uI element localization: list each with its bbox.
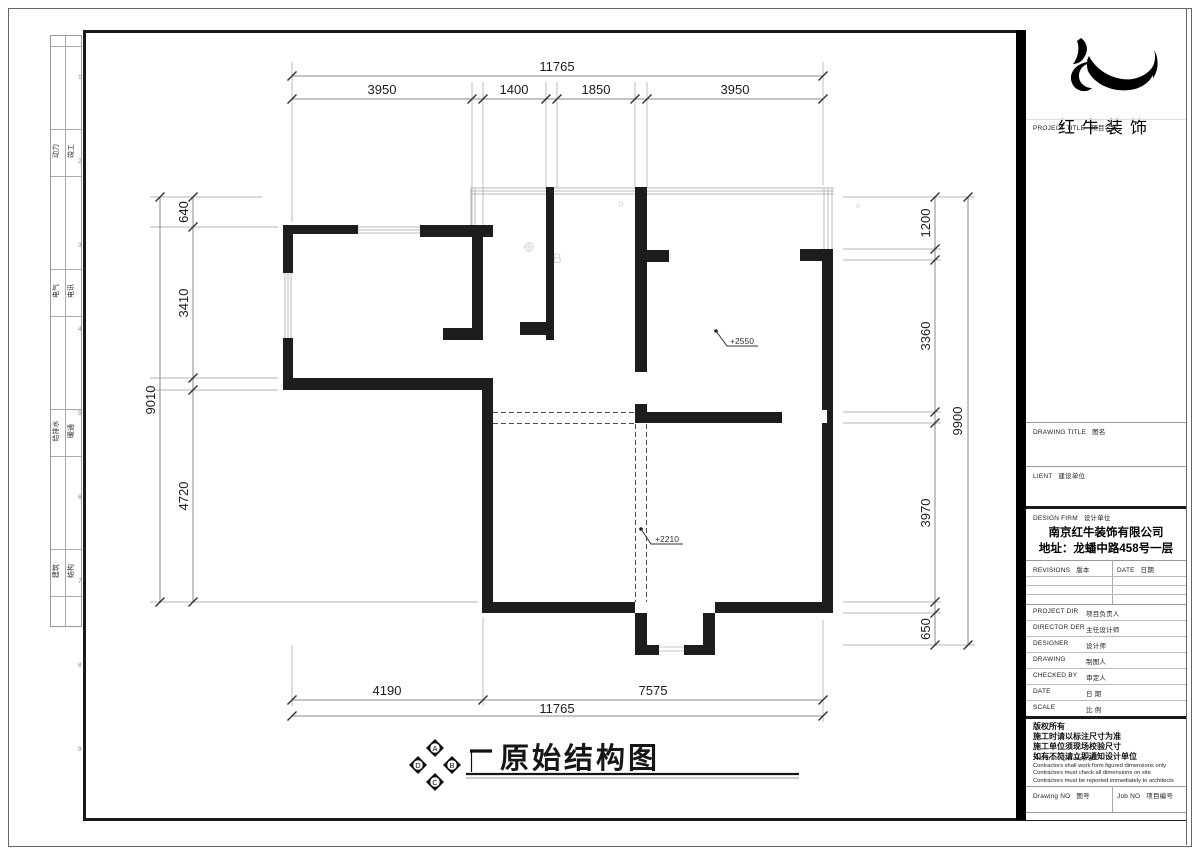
strip-cell-label: 竣工 (67, 131, 77, 171)
job-no-label: Job NO项目编号 (1117, 790, 1173, 800)
revisions-date-label: DATE日期 (1117, 564, 1154, 574)
staff-en: DESIGNER (1033, 640, 1069, 647)
staff-en: DRAWING (1033, 656, 1066, 663)
staff-row: CHECKED BY (1033, 672, 1077, 679)
drawing-no-label: Drawing NO图号 (1033, 790, 1090, 800)
copyright-line-en: Contractors shall work form figured dime… (1033, 763, 1174, 770)
drawing-no-en: Drawing NO (1033, 793, 1070, 800)
copyright-en-block: This drawing is copyright Contractors sh… (1033, 756, 1174, 785)
project-title-en: PROJECT TITLE (1033, 125, 1085, 132)
design-firm-zh: 设计单位 (1084, 515, 1111, 522)
copyright-line: 版权所有 (1033, 722, 1137, 732)
revisions-date-en: DATE (1117, 567, 1135, 574)
staff-zh: 设计师 (1086, 643, 1106, 650)
outer-border-inner-right (1186, 8, 1187, 845)
strip-divider (65, 36, 66, 626)
strip-cell-label: 电讯 (67, 271, 77, 311)
staff-row: DIRECTOR DER (1033, 624, 1085, 631)
revisions-zh: 版本 (1076, 567, 1089, 574)
staff-zh: 审定人 (1086, 675, 1106, 682)
client-en: LIENT (1033, 473, 1052, 480)
design-firm-label: DESIGN FIRM设计单位 (1033, 512, 1111, 522)
outer-border (8, 8, 1192, 847)
job-no-en: Job NO (1117, 793, 1140, 800)
staff-zh: 比 例 (1086, 707, 1101, 714)
staff-en: DIRECTOR DER (1033, 624, 1085, 631)
staff-row: DRAWING (1033, 656, 1066, 663)
staff-zh: 主任设计师 (1086, 627, 1120, 634)
staff-row: PROJECT DIR (1033, 608, 1078, 615)
title-block: 红牛装饰 PROJECT TITLE项目名称 DRAWING TITLE图名 L… (1026, 30, 1186, 820)
drawing-no-zh: 图号 (1076, 793, 1089, 800)
strip-cell-label: 电气 (52, 271, 62, 311)
firm-name: 南京红牛装饰有限公司 (1026, 524, 1186, 540)
inner-frame-left (83, 30, 86, 820)
drawing-title-label: DRAWING TITLE图名 (1033, 426, 1106, 436)
strip-cell-label: 建筑 (52, 551, 62, 591)
strip-cell-label: 结构 (67, 551, 77, 591)
revisions-date-zh: 日期 (1141, 567, 1154, 574)
brand-logo-icon (1051, 38, 1161, 98)
staff-en: PROJECT DIR (1033, 608, 1078, 615)
drawing-sheet: 11765 3950 1400 1850 3950 4190 7575 1176… (0, 0, 1200, 852)
staff-zh: 项目负责人 (1086, 611, 1120, 618)
copyright-line: 施工单位须现场校验尺寸 (1033, 742, 1137, 752)
staff-row: SCALE (1033, 704, 1055, 711)
copyright-line: 施工时请以标注尺寸为准 (1033, 732, 1137, 742)
strip-cell-label: 动力 (52, 131, 62, 171)
drawing-title-en: DRAWING TITLE (1033, 429, 1086, 436)
staff-row: DESIGNER (1033, 640, 1069, 647)
staff-en: DATE (1033, 688, 1051, 695)
firm-address: 地址：龙蟠中路458号一层 (1026, 540, 1186, 556)
project-title-zh: 项目名称 (1091, 125, 1118, 132)
staff-en: SCALE (1033, 704, 1055, 711)
strip-cell-label: 给排水 (52, 411, 62, 451)
grid-ref: 8 (78, 662, 82, 669)
staff-zh: 制图人 (1086, 659, 1106, 666)
titleblock-separator-bar (1016, 30, 1026, 820)
revisions-en: REVISIONS (1033, 567, 1070, 574)
revisions-label: REVISIONS版本 (1033, 564, 1090, 574)
project-title-label: PROJECT TITLE项目名称 (1033, 122, 1118, 132)
client-zh: 建设单位 (1058, 473, 1085, 480)
staff-row: DATE (1033, 688, 1051, 695)
discipline-strip (50, 35, 82, 627)
drawing-title-zh: 图名 (1092, 429, 1105, 436)
staff-zh: 日 期 (1086, 691, 1101, 698)
copyright-line-en: Contractors must check all dimensions on… (1033, 770, 1174, 777)
copyright-line-en: Contractors must be reported immediately… (1033, 778, 1174, 785)
design-firm-en: DESIGN FIRM (1033, 515, 1078, 522)
grid-ref: 9 (78, 746, 82, 753)
copyright-line-en: This drawing is copyright (1033, 756, 1174, 763)
client-label: LIENT建设单位 (1033, 470, 1085, 480)
job-no-zh: 项目编号 (1146, 793, 1173, 800)
staff-en: CHECKED BY (1033, 672, 1077, 679)
strip-cell-label: 暖通 (67, 411, 77, 451)
